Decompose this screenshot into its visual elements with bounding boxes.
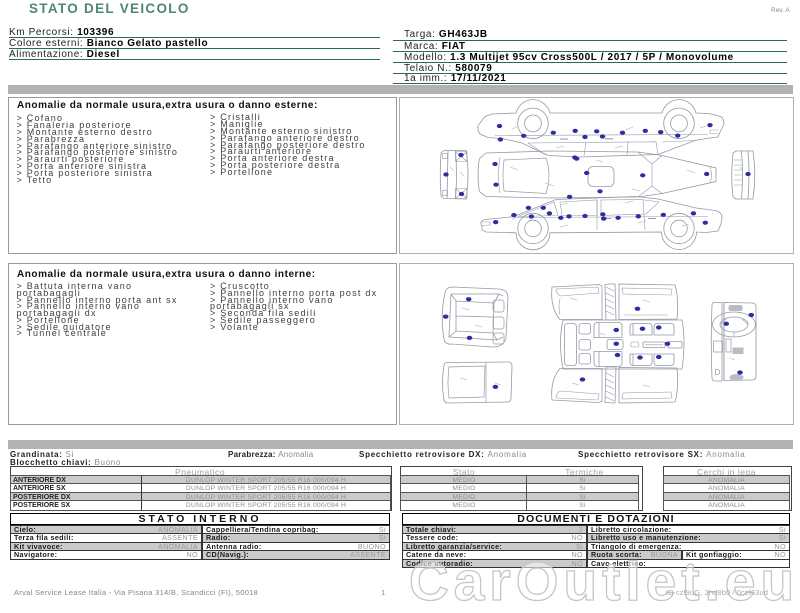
- svg-text:D: D: [715, 368, 721, 377]
